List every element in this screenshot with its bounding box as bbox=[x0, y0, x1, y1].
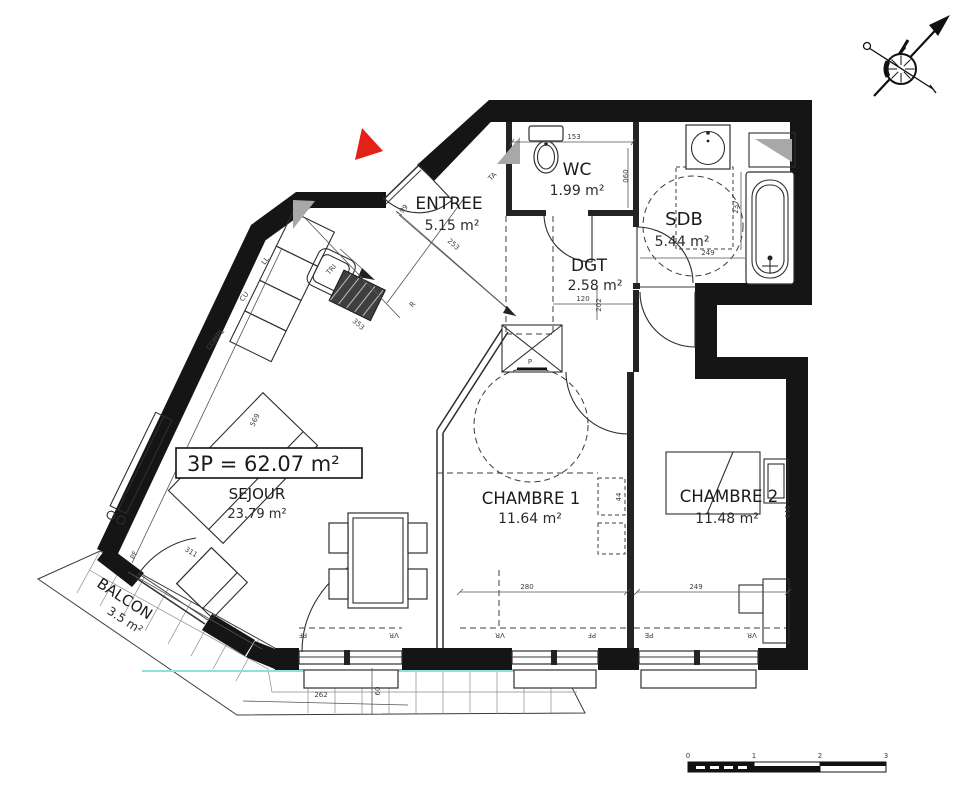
label-vr-ch2: VR bbox=[747, 631, 757, 639]
label-pf-sejour: PF bbox=[299, 631, 307, 639]
dim-202: 202 bbox=[595, 298, 603, 311]
dim-44: 44 bbox=[615, 492, 623, 501]
dim-249-ch2: 249 bbox=[689, 583, 702, 591]
dim-253: 253 bbox=[446, 237, 461, 252]
area-sejour: 23.79 m² bbox=[227, 507, 286, 522]
furniture-table bbox=[329, 513, 427, 608]
area-dgt: 2.58 m² bbox=[568, 278, 623, 294]
room-chambre2: CHAMBRE 2 bbox=[680, 487, 778, 506]
hatched-unit bbox=[329, 270, 385, 321]
sill-chambre2 bbox=[641, 670, 756, 688]
compass-rose-icon bbox=[864, 15, 951, 96]
scale-2: 2 bbox=[818, 752, 822, 760]
furniture-sink bbox=[686, 125, 730, 169]
room-chambre1: CHAMBRE 1 bbox=[482, 489, 580, 508]
dim-311: 311 bbox=[183, 545, 199, 559]
area-chambre1: 11.64 m² bbox=[498, 511, 562, 527]
arrow-head bbox=[503, 306, 516, 316]
dim-262: 262 bbox=[314, 691, 327, 699]
label-p: P bbox=[528, 358, 532, 366]
furniture-toilet bbox=[529, 126, 563, 173]
dim-353: 353 bbox=[351, 317, 366, 332]
door-chambre2-arc bbox=[640, 292, 695, 347]
area-entree: 5.15 m² bbox=[425, 218, 480, 234]
scale-bar: 0 1 2 3 bbox=[686, 752, 888, 772]
sill-chambre1 bbox=[514, 670, 596, 688]
room-sejour: SEJOUR bbox=[229, 485, 286, 503]
door-window-left-arc bbox=[136, 538, 196, 578]
turning-circle-chambre1 bbox=[474, 368, 588, 482]
dim-280: 280 bbox=[520, 583, 533, 591]
room-entree: ENTREE bbox=[415, 194, 482, 214]
dim-237: 237 bbox=[732, 200, 740, 213]
label-r: R bbox=[408, 300, 417, 309]
dim-153: 153 bbox=[567, 133, 580, 141]
area-chambre2: 11.48 m² bbox=[695, 511, 759, 527]
dim-199: 199 bbox=[395, 203, 410, 218]
scale-3: 3 bbox=[884, 752, 888, 760]
label-tri: TRI bbox=[324, 263, 338, 277]
label-pf-ch1: PF bbox=[588, 631, 596, 639]
scale-0: 0 bbox=[686, 752, 690, 760]
dim-60: 60 bbox=[374, 687, 382, 696]
title-box: 3P = 62.07 m² bbox=[176, 448, 362, 478]
door-chambre1-arc bbox=[566, 372, 628, 434]
label-ta: TA bbox=[486, 171, 498, 184]
sill-sejour bbox=[304, 670, 398, 688]
dim-569: 569 bbox=[249, 412, 262, 428]
gray-triangle-sdb bbox=[755, 139, 792, 162]
dim-249-sdb: 249 bbox=[701, 249, 714, 257]
label-ll: LL bbox=[260, 255, 271, 266]
door-wc-arc bbox=[544, 214, 592, 262]
label-vr-sejour: VR bbox=[389, 631, 399, 639]
dim-120: 120 bbox=[576, 295, 589, 303]
floorplan-drawing: 153 060 253 199 353 249 237 120 202 569 … bbox=[0, 0, 956, 800]
furniture-desk-chambre2 bbox=[739, 579, 789, 643]
wardrobe-dashed-2 bbox=[598, 523, 625, 554]
floorplan-page: 153 060 253 199 353 249 237 120 202 569 … bbox=[0, 0, 956, 800]
red-triangle-marker bbox=[355, 128, 383, 160]
room-dgt: DGT bbox=[571, 256, 608, 276]
label-pe-ch2: PE bbox=[645, 631, 654, 639]
dim-060: 060 bbox=[622, 169, 630, 182]
room-sdb: SDB bbox=[665, 209, 703, 230]
furniture-bathtub bbox=[746, 172, 794, 284]
walls bbox=[97, 100, 812, 670]
area-wc: 1.99 m² bbox=[550, 183, 605, 199]
dim-440: 440 bbox=[784, 505, 792, 518]
area-sdb: 5.44 m² bbox=[655, 234, 710, 250]
plan-title: 3P = 62.07 m² bbox=[187, 452, 340, 476]
furniture-armchair bbox=[177, 548, 248, 619]
room-wc: WC bbox=[563, 160, 592, 180]
scale-1: 1 bbox=[752, 752, 756, 760]
label-vr-ch1: VR bbox=[495, 631, 505, 639]
